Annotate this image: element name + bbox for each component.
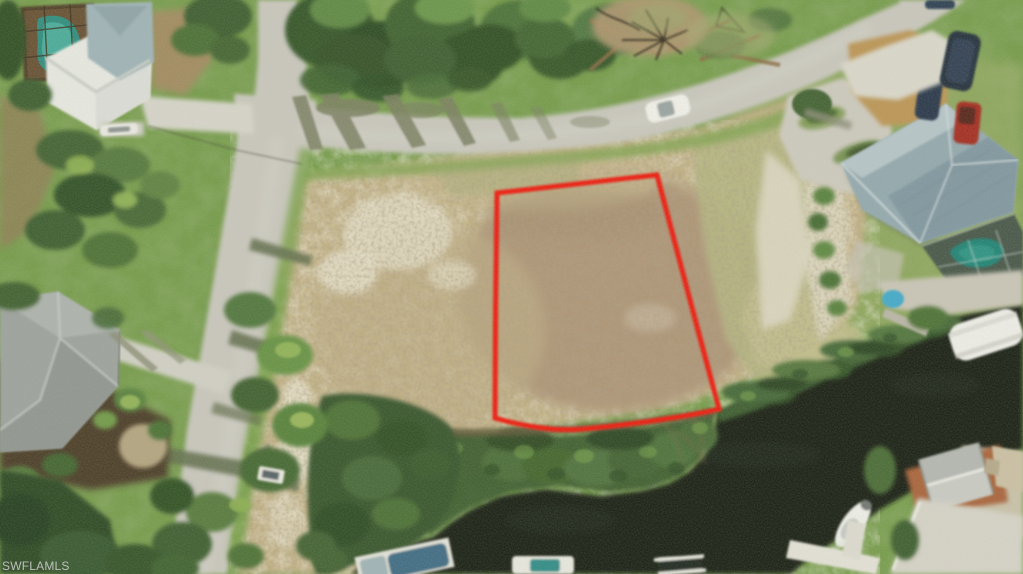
svg-text:SWFLAMLS: SWFLAMLS	[2, 559, 70, 573]
